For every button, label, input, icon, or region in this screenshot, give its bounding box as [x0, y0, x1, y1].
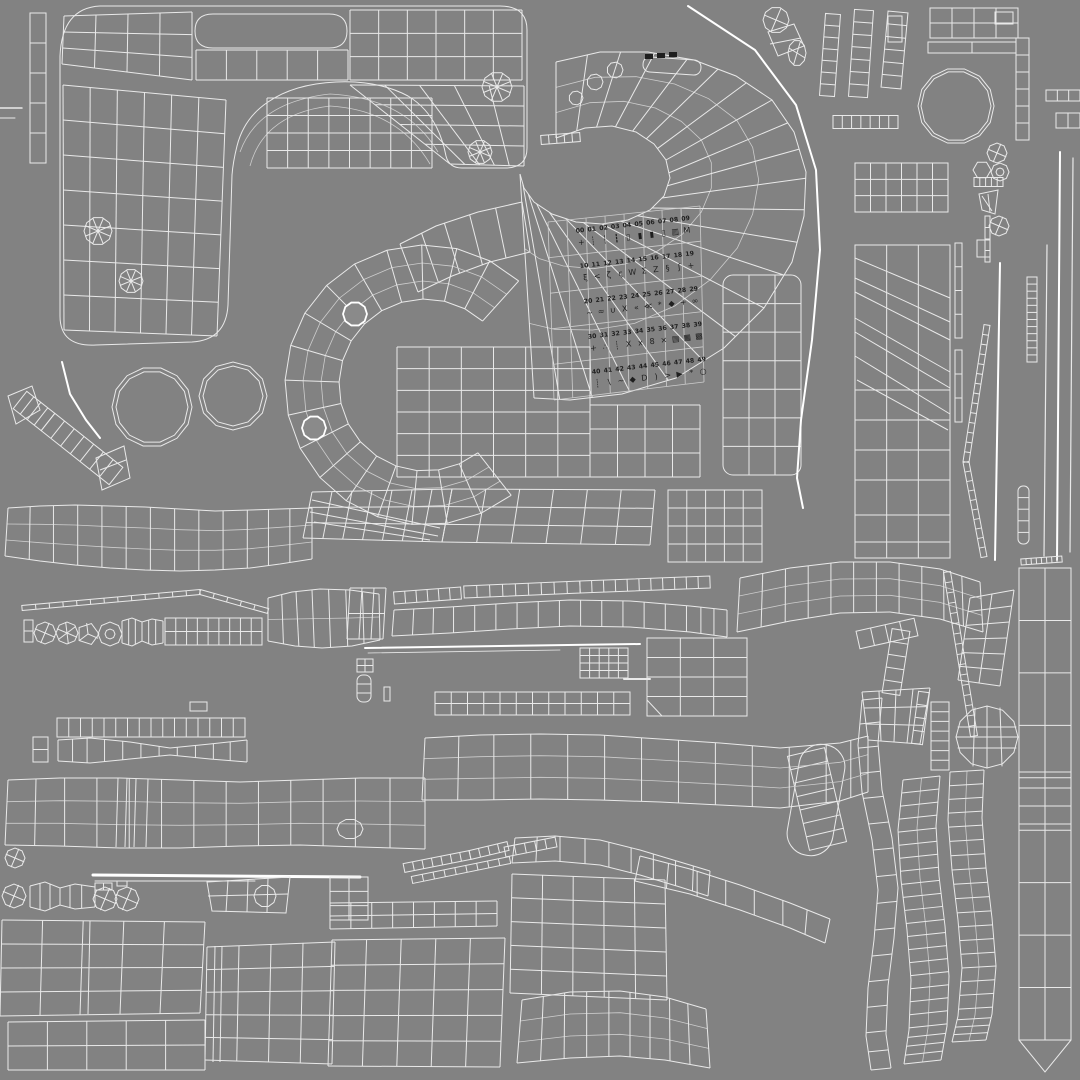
svg-text:«: « — [633, 303, 639, 313]
hook-band-2 — [41, 413, 123, 484]
svg-text:44: 44 — [638, 363, 648, 371]
chain-2 — [469, 842, 509, 860]
tiny-bar — [384, 687, 390, 701]
tr-ellipse — [788, 41, 806, 66]
svg-text:▮: ▮ — [649, 230, 654, 239]
thin-line-e — [1057, 152, 1060, 560]
svg-text:28: 28 — [677, 287, 686, 295]
svg-text:25: 25 — [642, 291, 651, 299]
bl-wavy-strip — [30, 882, 95, 911]
taper-ladder-small — [912, 691, 930, 744]
svg-text:▥: ▥ — [671, 227, 680, 237]
thin-line-b — [995, 263, 1000, 560]
thin-line-pair-2 — [368, 650, 560, 653]
svg-text:45: 45 — [650, 361, 659, 369]
svg-text:03: 03 — [611, 223, 620, 231]
cluster-circle-3 — [989, 216, 1009, 236]
long-swoosh-curve — [688, 6, 820, 508]
svg-text:06: 06 — [646, 219, 655, 227]
svg-text:┊: ┊ — [594, 378, 600, 388]
svg-text:◆: ◆ — [668, 299, 676, 309]
tr-blade-3 — [881, 11, 908, 89]
slant-grid-piece — [958, 590, 1014, 686]
thin-line-pair-1 — [365, 644, 640, 648]
edge-strip-2 — [1056, 113, 1080, 128]
screw-boss-pillar-2 — [119, 270, 143, 293]
svg-text:30: 30 — [588, 333, 598, 341]
svg-text:08: 08 — [669, 216, 678, 224]
stitch-pattern-chart: 00+01┊02┆03┇04▯05▮06▮07▯08▥09M10ξ11<12ζ1… — [575, 215, 707, 388]
svg-text:Z: Z — [653, 265, 660, 275]
hook-band-1 — [13, 391, 55, 430]
svg-text:12: 12 — [603, 260, 612, 268]
svg-text:§: § — [665, 264, 670, 273]
front-panel-dark-mark-2 — [657, 53, 665, 58]
two-row-grid — [435, 692, 630, 715]
trapezoid-circle — [254, 886, 276, 907]
panel-bottom-left — [0, 920, 205, 1016]
svg-text:26: 26 — [654, 289, 663, 297]
svg-text:34: 34 — [634, 327, 644, 335]
uv-wireframe-canvas: 00+01┊02┆03┇04▯05▮06▮07▯08▥09M10ξ11<12ζ1… — [0, 0, 1080, 1080]
ladder-strip-1 — [898, 776, 949, 1064]
comb-strip — [57, 718, 245, 737]
boomerang-1 — [856, 618, 918, 649]
svg-text:≈: ≈ — [597, 307, 605, 317]
svg-text:14: 14 — [626, 257, 636, 265]
svg-text:10: 10 — [579, 262, 589, 270]
screw-boss-arm-2 — [468, 141, 492, 164]
side-panel-top-right-grid — [350, 10, 522, 80]
svg-text:~: ~ — [586, 308, 594, 318]
svg-text:○: ○ — [699, 367, 707, 377]
cluster-cone — [979, 190, 998, 214]
svg-text:11: 11 — [591, 261, 600, 269]
side-panel-pillar-grid — [63, 85, 226, 336]
svg-text:+: + — [590, 343, 598, 353]
svg-text:X: X — [621, 304, 628, 314]
ring-boss-1 — [343, 303, 367, 326]
svg-text:05: 05 — [634, 220, 643, 228]
svg-text:): ) — [654, 372, 658, 381]
ring-small — [199, 362, 267, 430]
svg-text:27: 27 — [666, 288, 675, 296]
island-ring-c — [285, 245, 519, 524]
grid-rect-right — [855, 163, 948, 212]
small-rect-left — [33, 737, 48, 762]
svg-text:13: 13 — [615, 258, 624, 266]
comb-wavy-under — [58, 738, 247, 763]
ring-boss-2 — [302, 417, 326, 440]
svg-text:X: X — [625, 339, 632, 349]
side-panel-under-slot-grid — [196, 50, 348, 80]
wavy-vertical-band — [858, 698, 898, 1070]
ladder-strip-c — [1027, 277, 1037, 362]
row-long-grid — [165, 618, 262, 645]
svg-text:37: 37 — [670, 323, 679, 331]
tiny-block — [357, 659, 373, 672]
long-strip-left — [5, 505, 312, 571]
row-vbar — [24, 620, 33, 642]
curved-bottom-band — [517, 991, 710, 1068]
svg-text:∪: ∪ — [610, 305, 617, 315]
thin-line-f — [1070, 158, 1073, 552]
side-panel-arm-grid — [350, 85, 524, 166]
bl-circle-2 — [2, 884, 26, 908]
svg-text:46: 46 — [662, 360, 671, 368]
wedge-piece — [862, 688, 930, 744]
uv-layout-viewport: 00+01┊02┆03┇04▯05▮06▮07▯08▥09M10ξ11<12ζ1… — [0, 0, 1080, 1080]
svg-text:02: 02 — [599, 224, 608, 232]
svg-text:+: + — [679, 297, 687, 307]
row-pentagon — [79, 623, 99, 644]
svg-text:M: M — [683, 225, 691, 235]
tr-v-strip — [1016, 38, 1029, 140]
small-grid-panel — [330, 877, 368, 920]
svg-text:▦: ▦ — [683, 333, 692, 343]
svg-text:09: 09 — [681, 215, 690, 223]
svg-text:+: + — [578, 237, 586, 247]
tr-bar — [928, 42, 1016, 53]
svg-text:<: < — [593, 271, 601, 281]
svg-text:~: ~ — [617, 376, 625, 386]
dense-grid-block — [580, 648, 628, 678]
svg-text:18: 18 — [673, 252, 682, 260]
svg-text:21: 21 — [595, 296, 604, 304]
diag-ladder-g1 — [963, 325, 990, 463]
angled-thin-strip-1 — [22, 590, 200, 611]
svg-text:×: × — [660, 335, 668, 345]
front-panel-dark-mark-3 — [669, 52, 677, 57]
far-left-strip — [30, 13, 46, 163]
svg-text:▯: ▯ — [661, 228, 666, 237]
bl-circle-4 — [115, 887, 139, 911]
small-swoosh — [62, 362, 100, 438]
ring-large — [112, 368, 192, 446]
chain-1 — [403, 851, 471, 873]
handle-slot-hole — [195, 14, 347, 48]
svg-text:19: 19 — [685, 250, 694, 258]
svg-text:17: 17 — [662, 253, 671, 261]
right-column — [1019, 568, 1071, 1040]
svg-text:41: 41 — [603, 367, 612, 375]
svg-text:ζ: ζ — [606, 270, 611, 279]
svg-text:∴: ∴ — [602, 342, 608, 352]
right-column-point — [1019, 1040, 1071, 1072]
center-strip-a2 — [580, 576, 710, 593]
angled-thin-strip-2 — [199, 590, 268, 614]
svg-text:┊: ┊ — [590, 235, 596, 245]
hook-tab — [8, 386, 40, 424]
svg-text:48: 48 — [685, 357, 694, 365]
arch-arc-outer — [240, 94, 438, 152]
capsule-long-rungs — [787, 748, 846, 851]
wavy-chain-i — [1021, 556, 1062, 565]
svg-text:ʃ: ʃ — [676, 262, 681, 271]
row-circle-1 — [34, 622, 56, 644]
l-grid-horizontal — [590, 405, 700, 477]
svg-text:43: 43 — [627, 364, 636, 372]
svg-text:▤: ▤ — [671, 334, 680, 344]
center-strip-a1 — [464, 581, 581, 598]
svg-text:∞: ∞ — [691, 296, 699, 306]
panel-rounded-right — [723, 275, 801, 475]
cluster-circle-1 — [987, 143, 1007, 163]
svg-text:49: 49 — [697, 356, 706, 364]
row-octagon — [98, 622, 122, 646]
svg-text:+: + — [687, 261, 695, 271]
svg-text:39: 39 — [693, 321, 702, 329]
center-ladder-1 — [394, 587, 462, 604]
tr-blade-1 — [820, 13, 841, 96]
svg-text:32: 32 — [611, 330, 620, 338]
thin-strip-a1 — [955, 243, 962, 338]
side-panel-top-left-grid — [62, 12, 192, 80]
chain-4 — [504, 837, 557, 857]
bl-bright-line — [93, 875, 360, 877]
small-rect-top — [190, 702, 207, 711]
tall-piece — [510, 874, 667, 1000]
svg-text:42: 42 — [615, 365, 624, 373]
v-ladder-small — [931, 702, 949, 770]
capsule-long — [784, 741, 849, 859]
bl-circle-3 — [93, 887, 117, 911]
front-panel-hole-2 — [587, 74, 603, 90]
svg-text:31: 31 — [599, 331, 608, 339]
l-grid-vertical — [397, 347, 590, 477]
tr-panel-inset — [995, 12, 1013, 24]
capsule-h — [1018, 486, 1029, 544]
tr-quartered-circle — [763, 8, 789, 33]
hook-tip — [96, 446, 130, 490]
center-strip-b — [392, 600, 727, 637]
svg-text:07: 07 — [658, 218, 667, 226]
edge-strip-1 — [1046, 90, 1080, 101]
screw-boss-pillar-1 — [84, 218, 112, 245]
cluster-bracket — [977, 240, 990, 257]
arch-insert-grid — [267, 98, 432, 168]
svg-text:\: \ — [607, 377, 611, 386]
panel-a — [205, 942, 335, 1064]
neck-band — [400, 202, 530, 292]
svg-text:▯: ▯ — [626, 232, 631, 241]
front-panel-dark-mark-1 — [645, 54, 653, 59]
svg-text:*: * — [657, 300, 662, 309]
svg-text:01: 01 — [587, 226, 596, 234]
svg-text:▩: ▩ — [695, 331, 704, 341]
svg-text:22: 22 — [607, 295, 616, 303]
svg-text:15: 15 — [638, 256, 647, 264]
bottom-band — [8, 1020, 205, 1070]
long-band-center — [422, 734, 868, 808]
svg-text:┇: ┇ — [614, 233, 620, 243]
diag-ladder-g2 — [963, 461, 987, 557]
svg-text:┊: ┊ — [614, 340, 620, 350]
svg-text:36: 36 — [658, 325, 667, 333]
tr-big-circle — [918, 69, 994, 143]
island-front-panel-band — [520, 52, 806, 400]
cluster-ladder — [974, 178, 1003, 187]
tr-h-ladder — [833, 116, 898, 129]
svg-text:29: 29 — [689, 285, 698, 293]
svg-text:Σ: Σ — [641, 266, 647, 276]
bl-circle-1 — [5, 848, 25, 868]
svg-text:00: 00 — [575, 227, 585, 235]
svg-text:35: 35 — [646, 326, 655, 334]
svg-text:16: 16 — [650, 254, 659, 262]
svg-text:24: 24 — [630, 292, 640, 300]
svg-text:33: 33 — [623, 329, 632, 337]
thin-line-d — [1044, 245, 1047, 556]
ladder-strip-2 — [948, 770, 996, 1042]
tr-quad — [768, 24, 804, 56]
front-panel-underbar — [541, 133, 581, 145]
band-diag-right — [635, 856, 830, 943]
cluster-ring — [991, 163, 1009, 181]
cluster-circle-2 — [973, 162, 991, 178]
cluster-bar — [985, 216, 990, 262]
svg-text:20: 20 — [583, 297, 593, 305]
svg-text:≪: ≪ — [643, 301, 652, 311]
screw-boss-arm-1 — [482, 73, 512, 102]
tr-blade-2 — [849, 9, 874, 97]
svg-text:◆: ◆ — [629, 375, 637, 385]
bl-tiny-rect-2 — [117, 881, 127, 886]
svg-text:40: 40 — [592, 368, 602, 376]
row-wavy-grid — [122, 618, 163, 646]
band-oval-hole — [337, 819, 363, 838]
grid-square — [668, 490, 762, 562]
svg-text:x: x — [638, 338, 644, 348]
svg-text:ς: ς — [618, 269, 624, 278]
svg-text:▮: ▮ — [637, 231, 642, 240]
svg-text:47: 47 — [674, 359, 683, 367]
svg-text:D: D — [641, 373, 648, 383]
panel-b — [328, 938, 505, 1067]
svg-text:04: 04 — [622, 222, 632, 230]
svg-text:8: 8 — [649, 337, 655, 347]
svg-text:23: 23 — [619, 293, 628, 301]
svg-text:*: * — [689, 368, 694, 377]
big-panel-center — [647, 638, 747, 716]
svg-text:38: 38 — [681, 322, 690, 330]
tall-diag-panel — [855, 245, 950, 558]
thin-strip-a2 — [955, 350, 962, 422]
trapezoid-with-circle — [207, 877, 290, 913]
row-circle-2 — [56, 622, 78, 644]
tiny-capsule — [357, 675, 371, 702]
band-with-oval — [5, 778, 425, 849]
svg-text:>: > — [664, 371, 672, 381]
svg-text:W: W — [628, 267, 637, 277]
svg-text:┆: ┆ — [602, 234, 608, 244]
